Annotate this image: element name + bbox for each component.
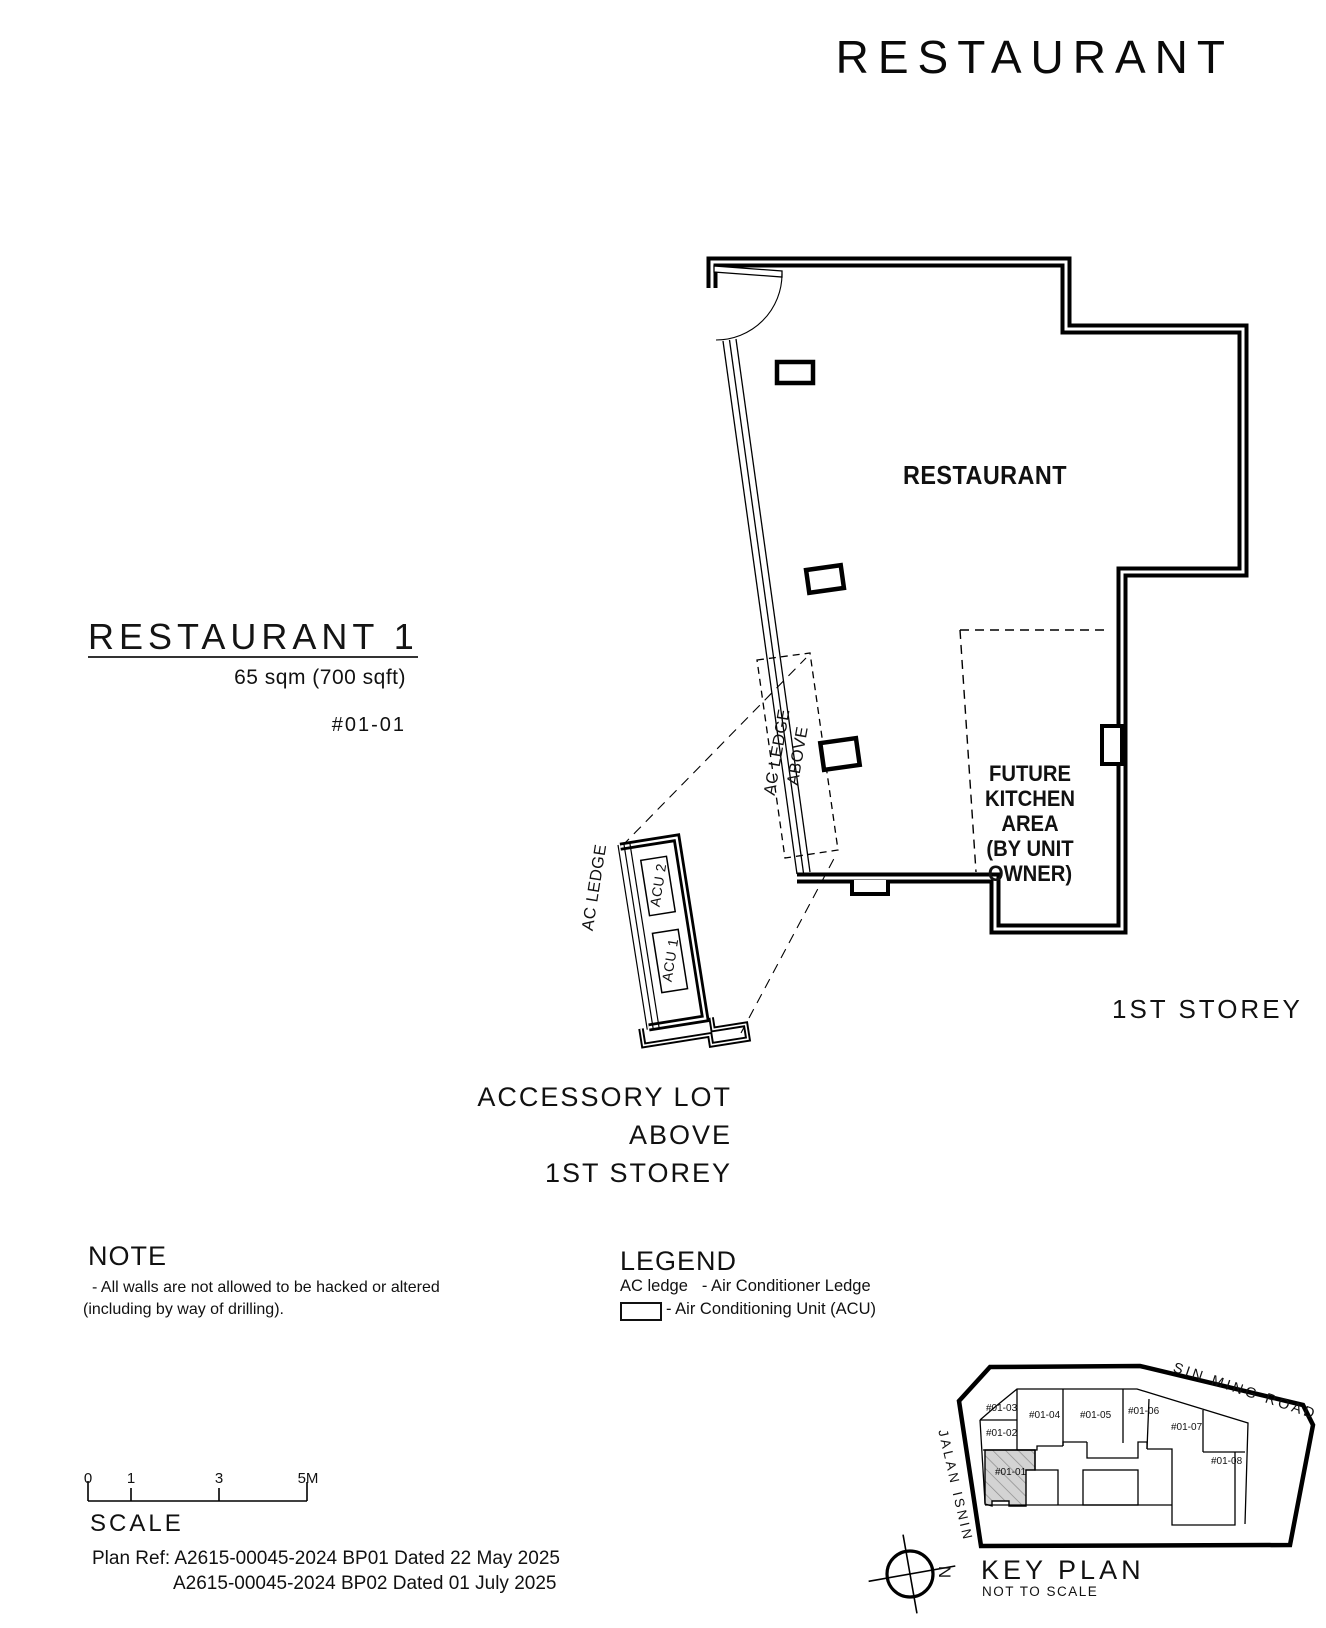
legend-ac-ledge-desc: - Air Conditioner Ledge [702,1277,871,1295]
unit-area: 65 sqm (700 sqft) [88,666,406,690]
unit-number: #01-01 [88,714,406,737]
note-line-2: (including by way of drilling). [83,1301,284,1319]
keyplan-unit-01-04: #01-04 [1029,1410,1060,1421]
plan-ref-line-2: A2615-00045-2024 BP02 Dated 01 July 2025 [173,1573,556,1595]
unit-name-underline [88,656,418,658]
scale-heading: SCALE [90,1510,184,1538]
keyplan-unit-01-08: #01-08 [1211,1456,1242,1467]
legend-ac-ledge-row: AC ledge- Air Conditioner Ledge [620,1277,871,1296]
room-label: RESTAURANT [903,460,1067,491]
note-line-1: - All walls are not allowed to be hacked… [92,1279,440,1297]
floor-plan-page: RESTAURANT RESTAURANT 1 65 sqm (700 sqft… [0,0,1326,1628]
note-heading: NOTE [88,1241,167,1272]
keyplan-unit-01-03: #01-03 [986,1403,1017,1414]
keyplan-unit-01-07: #01-07 [1171,1422,1202,1433]
key-plan-subheading: NOT TO SCALE [982,1584,1098,1599]
door-swing [714,266,782,340]
legend-acu-desc: - Air Conditioning Unit (ACU) [666,1300,876,1319]
north-label: N [934,1566,954,1578]
scale-tick-1: 1 [127,1470,135,1487]
keyplan-unit-01-02: #01-02 [986,1428,1017,1439]
keyplan-unit-01-06: #01-06 [1128,1406,1159,1417]
accessory-lot-label: ACCESSORY LOT ABOVE 1ST STOREY [430,1078,732,1192]
key-plan-highlight-unit [985,1450,1035,1506]
storey-label: 1ST STOREY [1112,994,1303,1025]
plan-ref-line-1: Plan Ref: A2615-00045-2024 BP01 Dated 22… [92,1548,560,1570]
page-title: RESTAURANT [836,30,1234,84]
legend-acu-symbol [620,1302,662,1321]
scale-tick-0: 0 [84,1470,92,1487]
unit-name: RESTAURANT 1 [88,616,419,658]
keyplan-unit-01-05: #01-05 [1080,1410,1111,1421]
kitchen-area-label: FUTURE KITCHEN AREA (BY UNIT OWNER) [956,761,1103,886]
scale-tick-5m: 5M [298,1470,319,1487]
legend-ac-ledge-term: AC ledge [620,1277,688,1295]
scale-tick-3: 3 [215,1470,223,1487]
keyplan-unit-01-01: #01-01 [995,1467,1026,1478]
key-plan-heading: KEY PLAN [981,1555,1145,1586]
legend-heading: LEGEND [620,1246,737,1277]
scale-bar [88,1481,307,1501]
